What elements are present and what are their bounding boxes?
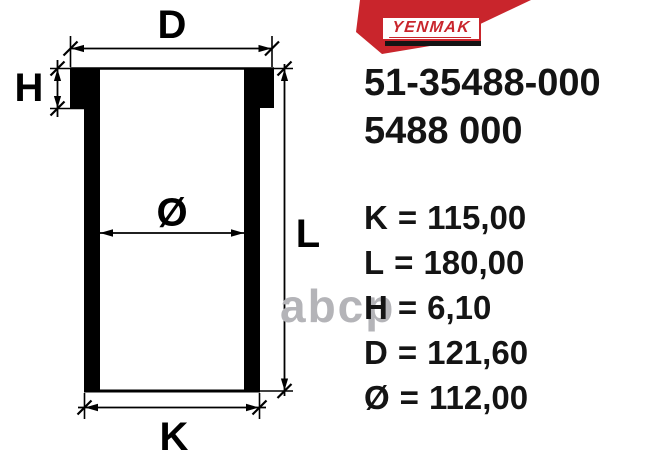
dimension-l: [260, 62, 293, 399]
spec-symbol: H: [364, 289, 388, 326]
spec-symbol: K: [364, 199, 388, 236]
spec-symbol: L: [364, 244, 384, 281]
spec-equals: =: [398, 199, 417, 236]
spec-value: 112,00: [429, 379, 528, 416]
spec-list: K=115,00 L=180,00 H=6,10 D=121,60 Ø=112,…: [364, 195, 528, 420]
spec-value: 6,10: [427, 289, 491, 326]
brand-logo-text: YENMAK: [389, 20, 473, 38]
spec-equals: =: [398, 289, 417, 326]
spec-symbol: D: [364, 334, 388, 371]
spec-value: 180,00: [423, 244, 524, 281]
brand-logo-underline: [385, 41, 481, 46]
spec-row-h: H=6,10: [364, 285, 528, 330]
spec-row-k: K=115,00: [364, 195, 528, 240]
spec-equals: =: [398, 334, 417, 371]
drawing-label-h: H: [15, 66, 44, 110]
spec-symbol: Ø: [364, 379, 390, 416]
brand-banner: [0, 0, 650, 60]
liner-technical-drawing: D H Ø L: [0, 0, 345, 457]
product-card: D H Ø L: [0, 0, 650, 457]
spec-equals: =: [400, 379, 419, 416]
spec-value: 121,60: [427, 334, 528, 371]
drawing-label-k: K: [160, 415, 189, 457]
brand-logo: YENMAK: [381, 16, 481, 41]
part-number-secondary: 5488 000: [364, 112, 523, 150]
drawing-label-bore: Ø: [156, 191, 187, 235]
spec-row-d: D=121,60: [364, 330, 528, 375]
drawing-label-l: L: [296, 212, 320, 256]
spec-equals: =: [394, 244, 413, 281]
spec-value: 115,00: [427, 199, 526, 236]
part-number-primary: 51-35488-000: [364, 64, 601, 102]
spec-row-bore: Ø=112,00: [364, 375, 528, 420]
spec-row-l: L=180,00: [364, 240, 528, 285]
